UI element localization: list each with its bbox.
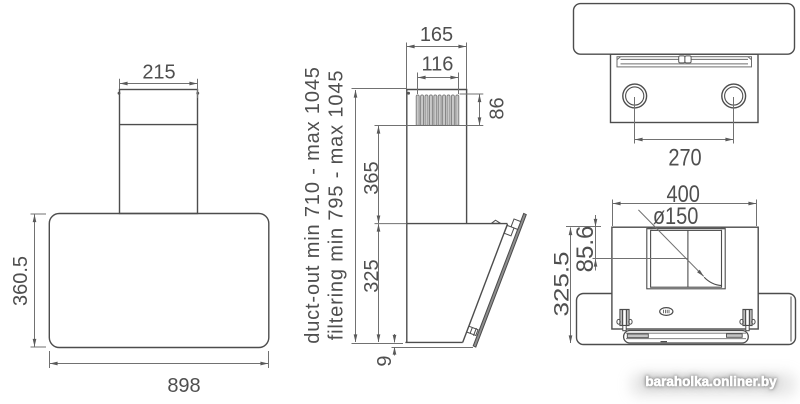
- svg-text:9: 9: [374, 355, 396, 366]
- svg-text:duct-out min 710 - max 1045: duct-out min 710 - max 1045: [302, 66, 324, 344]
- svg-text:filtering min 795 - max 1045: filtering min 795 - max 1045: [326, 70, 348, 341]
- svg-text:365: 365: [361, 161, 383, 194]
- svg-text:85.6: 85.6: [572, 226, 599, 273]
- svg-text:215: 215: [142, 62, 175, 84]
- svg-text:360.5: 360.5: [10, 256, 32, 306]
- svg-text:898: 898: [167, 375, 200, 397]
- svg-text:325: 325: [361, 259, 383, 292]
- svg-text:ø150: ø150: [653, 202, 699, 229]
- svg-text:325.5: 325.5: [550, 251, 574, 316]
- svg-text:116: 116: [422, 54, 454, 76]
- svg-text:86: 86: [487, 97, 509, 119]
- svg-text:165: 165: [420, 24, 453, 46]
- svg-text:270: 270: [668, 144, 701, 171]
